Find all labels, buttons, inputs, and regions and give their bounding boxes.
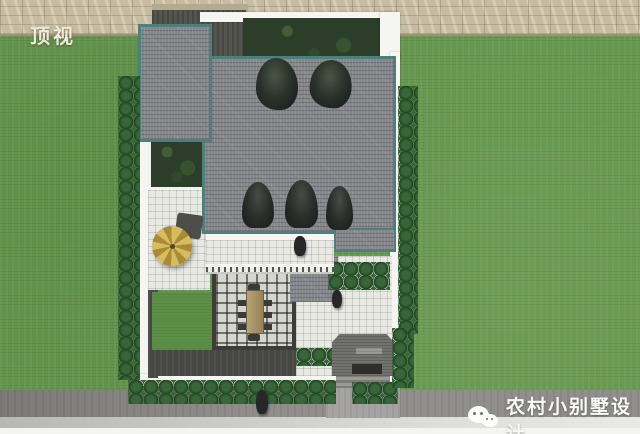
watermark: 农村小别墅设计 (468, 392, 640, 434)
shrub-cluster-gate-side (392, 328, 414, 388)
watermark-text: 农村小别墅设计 (506, 392, 640, 434)
outdoor-dining-table (246, 290, 264, 334)
gate-door (352, 364, 382, 374)
left-wing-roof (138, 24, 212, 142)
pergola-chair-end-2 (248, 334, 260, 341)
pergola-chairs-right (264, 294, 272, 330)
courtyard-hedge (328, 262, 390, 290)
pergola-chairs-left (238, 294, 246, 330)
wechat-icon (468, 405, 499, 433)
shrub-row-right (398, 86, 418, 334)
terrace-railing (206, 264, 334, 274)
person-road (256, 390, 268, 414)
shrub-row-left (118, 76, 140, 380)
render-canvas: 顶视 农村小别墅设计 (0, 0, 640, 434)
person-terrace (294, 236, 306, 256)
gate-plaque (356, 348, 382, 354)
person-courtyard (332, 290, 342, 308)
patio-umbrella (152, 226, 192, 266)
view-label: 顶视 (30, 20, 76, 49)
lower-right-roof (334, 228, 396, 252)
shrub-row-front-left (128, 380, 336, 404)
terrace-tiles (206, 240, 334, 266)
tree-courtyard (148, 134, 208, 190)
inner-lawn (152, 292, 214, 352)
courtyard-bushes (296, 348, 332, 366)
